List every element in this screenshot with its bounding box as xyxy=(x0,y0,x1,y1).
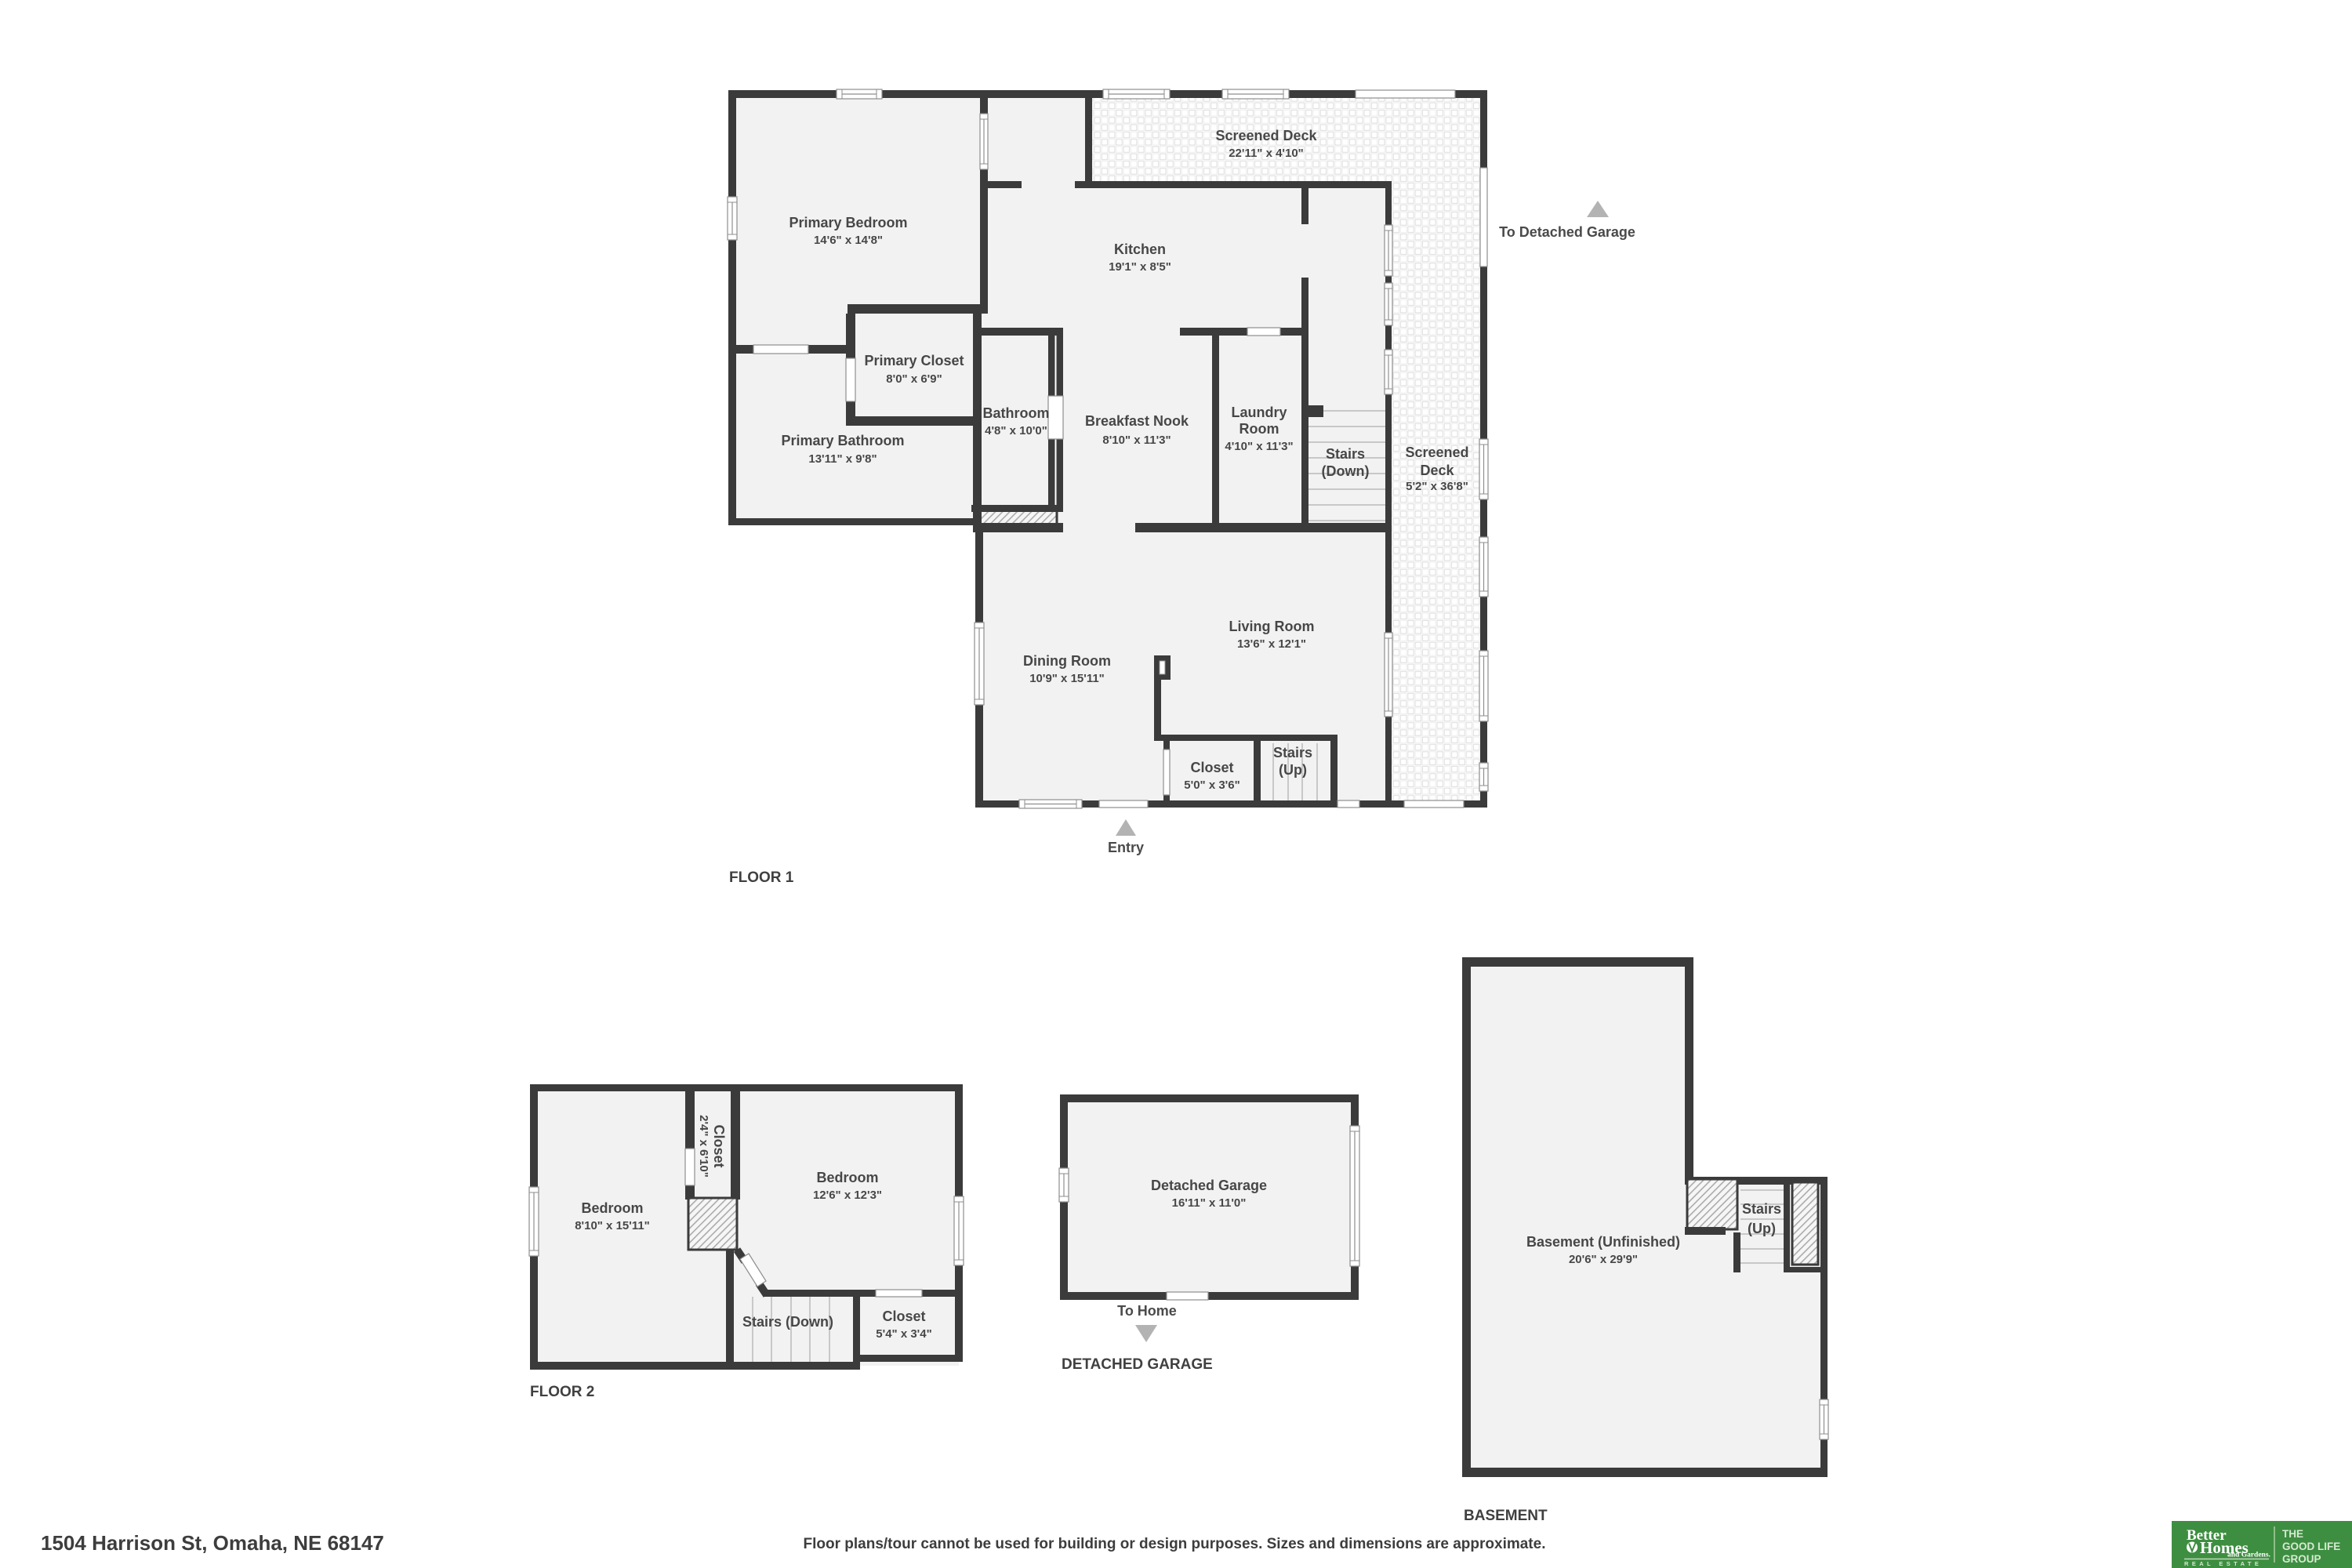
svg-text:4'10" x 11'3": 4'10" x 11'3" xyxy=(1225,440,1293,453)
svg-text:5'4" x 3'4": 5'4" x 3'4" xyxy=(876,1327,931,1341)
svg-text:8'10" x 15'11": 8'10" x 15'11" xyxy=(575,1219,650,1232)
svg-text:Screened Deck: Screened Deck xyxy=(1215,128,1317,143)
svg-text:12'6" x 12'3": 12'6" x 12'3" xyxy=(813,1189,882,1202)
svg-text:Entry: Entry xyxy=(1108,840,1144,855)
svg-text:Detached Garage: Detached Garage xyxy=(1151,1178,1267,1193)
svg-text:14'6" x 14'8": 14'6" x 14'8" xyxy=(814,234,883,247)
svg-text:5'0" x 3'6": 5'0" x 3'6" xyxy=(1184,779,1240,792)
svg-text:Stairs: Stairs xyxy=(1742,1201,1781,1217)
svg-text:8'0" x 6'9": 8'0" x 6'9" xyxy=(886,372,942,386)
svg-text:16'11" x 11'0": 16'11" x 11'0" xyxy=(1172,1196,1247,1210)
svg-text:Bedroom: Bedroom xyxy=(581,1200,643,1216)
svg-text:4'8" x 10'0": 4'8" x 10'0" xyxy=(985,424,1047,437)
svg-text:8'10" x 11'3": 8'10" x 11'3" xyxy=(1102,434,1171,447)
svg-text:1504 Harrison St, Omaha, NE 68: 1504 Harrison St, Omaha, NE 68147 xyxy=(41,1531,384,1555)
svg-text:Breakfast Nook: Breakfast Nook xyxy=(1085,413,1189,429)
svg-text:To Home: To Home xyxy=(1117,1303,1177,1319)
svg-text:FLOOR 2: FLOOR 2 xyxy=(530,1384,594,1400)
svg-text:5'2" x 36'8": 5'2" x 36'8" xyxy=(1406,480,1468,493)
svg-text:THE: THE xyxy=(2282,1528,2303,1540)
svg-text:Stairs: Stairs xyxy=(1326,446,1365,462)
svg-text:REAL ESTATE: REAL ESTATE xyxy=(2184,1560,2262,1567)
svg-text:GROUP: GROUP xyxy=(2282,1553,2321,1565)
svg-text:Primary Bathroom: Primary Bathroom xyxy=(781,433,904,448)
svg-text:and Gardens.: and Gardens. xyxy=(2227,1552,2270,1559)
svg-text:22'11" x 4'10": 22'11" x 4'10" xyxy=(1229,147,1304,160)
svg-text:19'1" x 8'5": 19'1" x 8'5" xyxy=(1109,260,1171,274)
svg-text:Dining Room: Dining Room xyxy=(1023,653,1111,669)
svg-text:(Down): (Down) xyxy=(1322,463,1370,479)
svg-text:FLOOR 1: FLOOR 1 xyxy=(729,869,794,886)
svg-text:13'11" x 9'8": 13'11" x 9'8" xyxy=(808,452,877,466)
svg-text:Bedroom: Bedroom xyxy=(816,1170,878,1185)
svg-text:13'6" x 12'1": 13'6" x 12'1" xyxy=(1237,637,1306,651)
svg-text:10'9" x 15'11": 10'9" x 15'11" xyxy=(1029,672,1105,685)
svg-text:DETACHED GARAGE: DETACHED GARAGE xyxy=(1062,1356,1213,1373)
svg-text:2'4" x 6'10": 2'4" x 6'10" xyxy=(697,1115,710,1178)
svg-text:To Detached Garage: To Detached Garage xyxy=(1499,224,1635,240)
svg-text:Basement (Unfinished): Basement (Unfinished) xyxy=(1526,1234,1680,1250)
svg-text:Closet: Closet xyxy=(882,1308,925,1324)
svg-text:(Up): (Up) xyxy=(1748,1221,1776,1236)
svg-text:20'6" x 29'9": 20'6" x 29'9" xyxy=(1569,1253,1638,1266)
svg-text:Deck: Deck xyxy=(1420,463,1454,478)
svg-text:Stairs (Down): Stairs (Down) xyxy=(742,1314,833,1330)
svg-text:BASEMENT: BASEMENT xyxy=(1464,1508,1548,1524)
svg-text:Floor plans/tour cannot be use: Floor plans/tour cannot be used for buil… xyxy=(804,1536,1546,1552)
svg-text:Closet: Closet xyxy=(711,1124,727,1167)
svg-text:Living Room: Living Room xyxy=(1229,619,1315,634)
svg-text:Stairs: Stairs xyxy=(1273,745,1312,760)
svg-text:Laundry: Laundry xyxy=(1231,405,1287,420)
svg-text:GOOD LIFE: GOOD LIFE xyxy=(2282,1541,2340,1552)
svg-text:(Up): (Up) xyxy=(1279,762,1307,778)
svg-text:Bathroom: Bathroom xyxy=(983,405,1050,421)
svg-text:Primary Bedroom: Primary Bedroom xyxy=(789,215,907,230)
svg-text:Screened: Screened xyxy=(1405,445,1468,460)
svg-text:Kitchen: Kitchen xyxy=(1114,241,1166,257)
svg-text:Primary Closet: Primary Closet xyxy=(864,353,964,368)
svg-text:Closet: Closet xyxy=(1190,760,1233,775)
svg-text:Room: Room xyxy=(1240,421,1279,437)
